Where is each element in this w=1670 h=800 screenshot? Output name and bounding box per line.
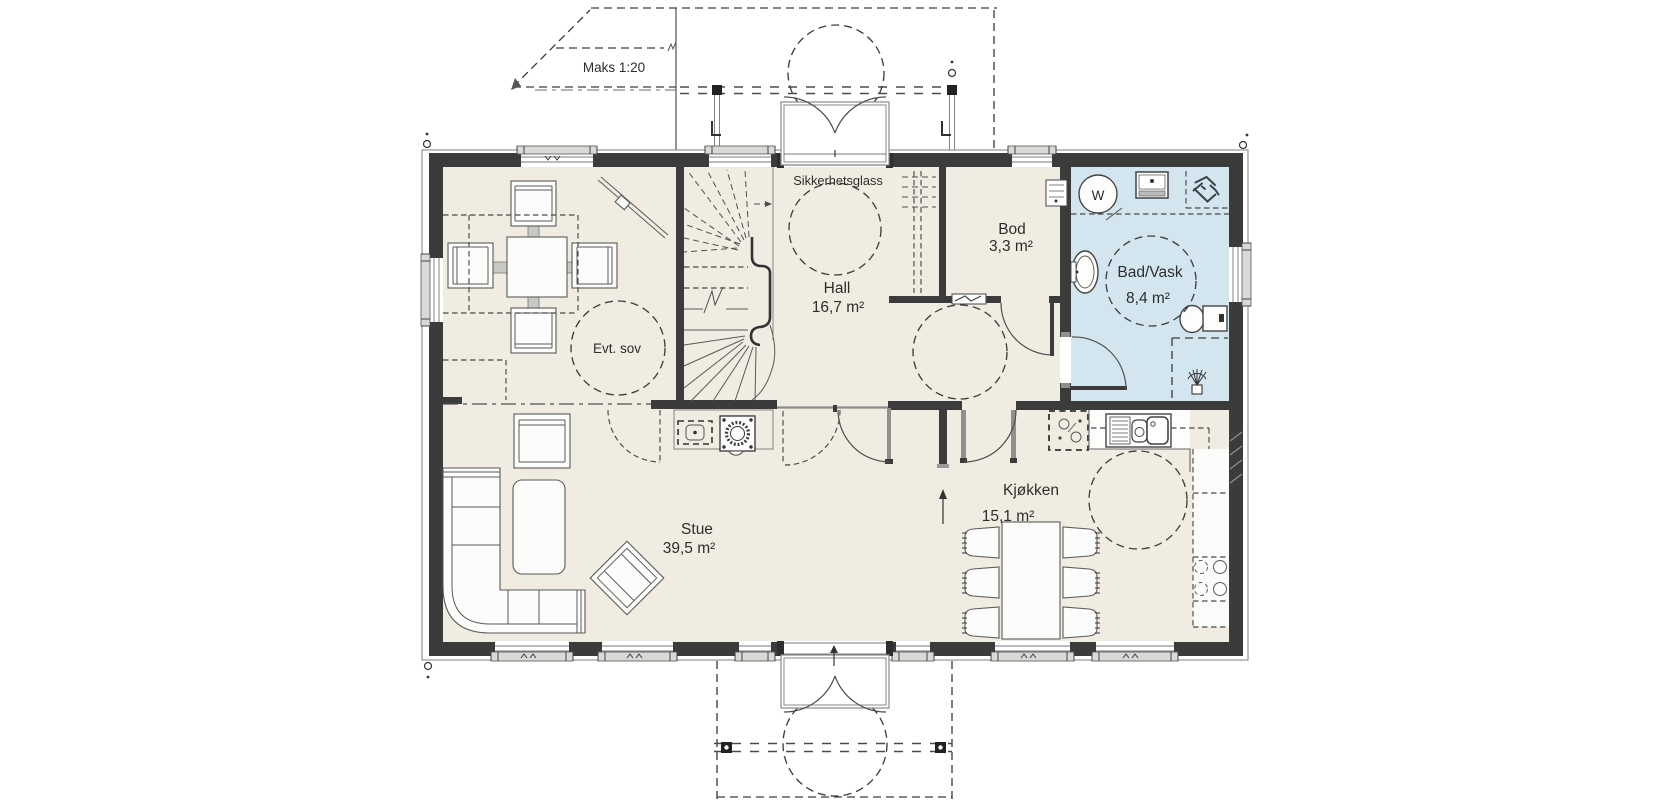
svg-text:Stue: Stue (681, 521, 713, 538)
svg-text:Maks 1:20: Maks 1:20 (583, 60, 645, 75)
svg-text:39,5 m²: 39,5 m² (663, 540, 716, 557)
svg-text:8,4 m²: 8,4 m² (1126, 290, 1170, 307)
svg-text:Sikkerhetsglass: Sikkerhetsglass (793, 173, 883, 188)
svg-text:16,7 m²: 16,7 m² (812, 299, 865, 316)
svg-text:Bod: Bod (998, 221, 1026, 238)
svg-text:Evt. sov: Evt. sov (593, 341, 641, 356)
svg-text:W: W (1092, 188, 1105, 203)
svg-text:3,3 m²: 3,3 m² (989, 238, 1033, 255)
svg-text:Hall: Hall (824, 280, 851, 297)
svg-text:15,1 m²: 15,1 m² (982, 508, 1035, 525)
svg-text:Kjøkken: Kjøkken (1003, 482, 1059, 499)
svg-text:Bad/Vask: Bad/Vask (1117, 264, 1182, 281)
